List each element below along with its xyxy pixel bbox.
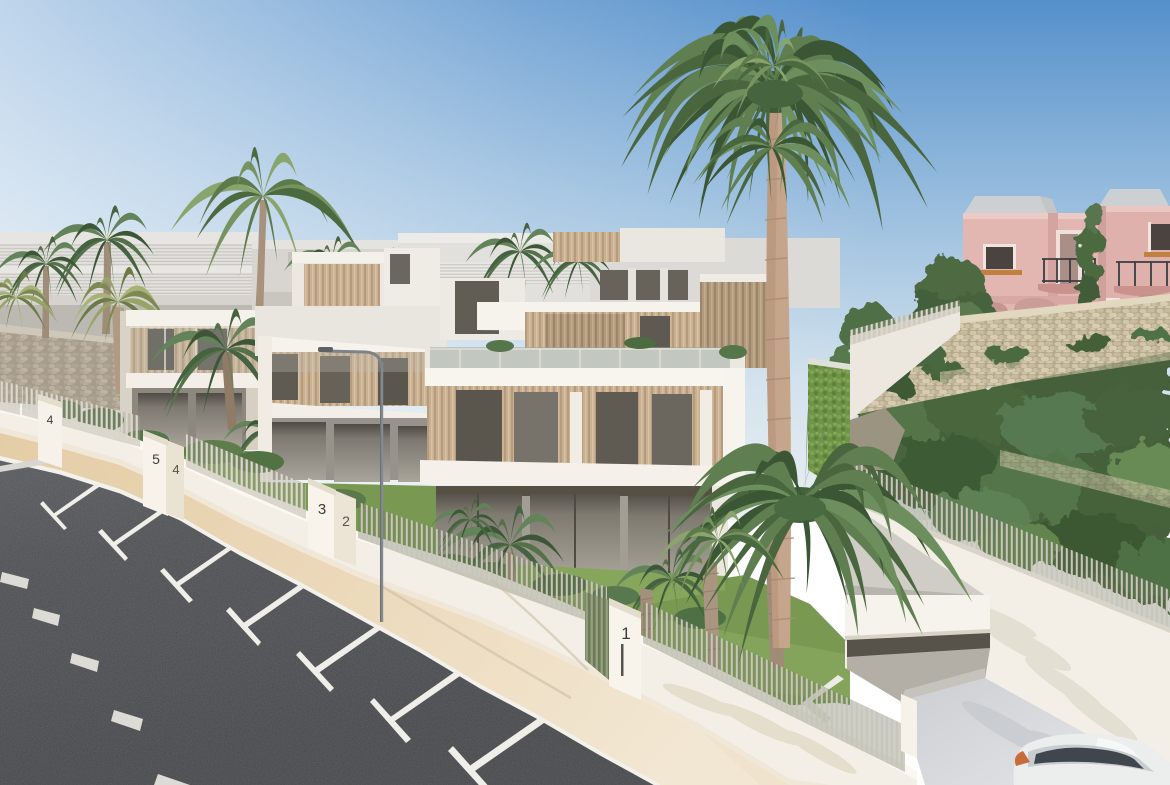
- svg-text:2: 2: [342, 513, 350, 529]
- svg-text:3: 3: [318, 501, 326, 518]
- svg-text:1: 1: [621, 624, 630, 643]
- svg-text:4: 4: [172, 462, 179, 477]
- svg-text:4: 4: [47, 413, 54, 427]
- svg-text:5: 5: [152, 451, 160, 467]
